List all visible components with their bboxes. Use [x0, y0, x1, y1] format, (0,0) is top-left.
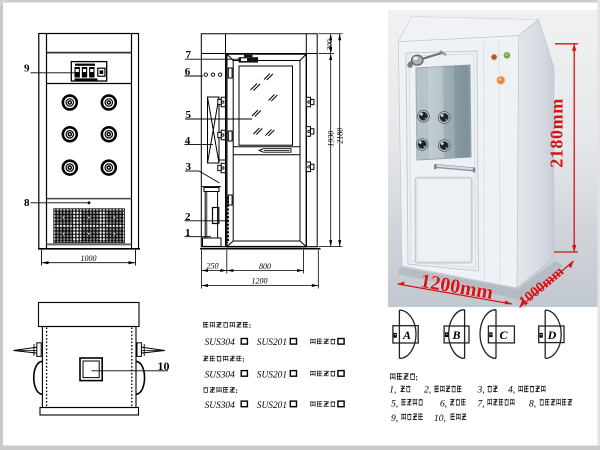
svg-text:7,: 7,: [478, 399, 485, 409]
svg-text:1: 1: [185, 227, 191, 239]
svg-text:1930: 1930: [327, 131, 336, 147]
svg-text:1,: 1,: [389, 386, 396, 396]
svg-text:SUS201: SUS201: [257, 338, 287, 348]
svg-text:1200: 1200: [252, 277, 268, 286]
svg-text:1000: 1000: [81, 254, 97, 263]
svg-text:B: B: [451, 328, 460, 342]
svg-text:4,: 4,: [508, 386, 515, 396]
svg-text:8: 8: [24, 197, 30, 209]
svg-text:5,: 5,: [391, 399, 398, 409]
svg-text:C: C: [499, 328, 508, 342]
svg-text:800: 800: [259, 262, 271, 271]
svg-text:10: 10: [158, 359, 170, 373]
svg-text:250: 250: [207, 262, 219, 271]
svg-text:A: A: [402, 328, 411, 342]
svg-text:6,: 6,: [440, 399, 447, 409]
svg-text:SUS304: SUS304: [205, 338, 236, 348]
svg-text:10,: 10,: [434, 414, 446, 424]
svg-text:8,: 8,: [529, 399, 536, 409]
svg-text:300: 300: [325, 39, 334, 52]
svg-text:D: D: [547, 328, 557, 342]
svg-text:2180mm: 2180mm: [547, 98, 567, 168]
svg-text:3,: 3,: [477, 386, 485, 396]
svg-text:9: 9: [24, 63, 30, 75]
svg-text:2180: 2180: [336, 128, 345, 144]
svg-text:9,: 9,: [391, 414, 398, 424]
svg-text:2,: 2,: [424, 386, 431, 396]
